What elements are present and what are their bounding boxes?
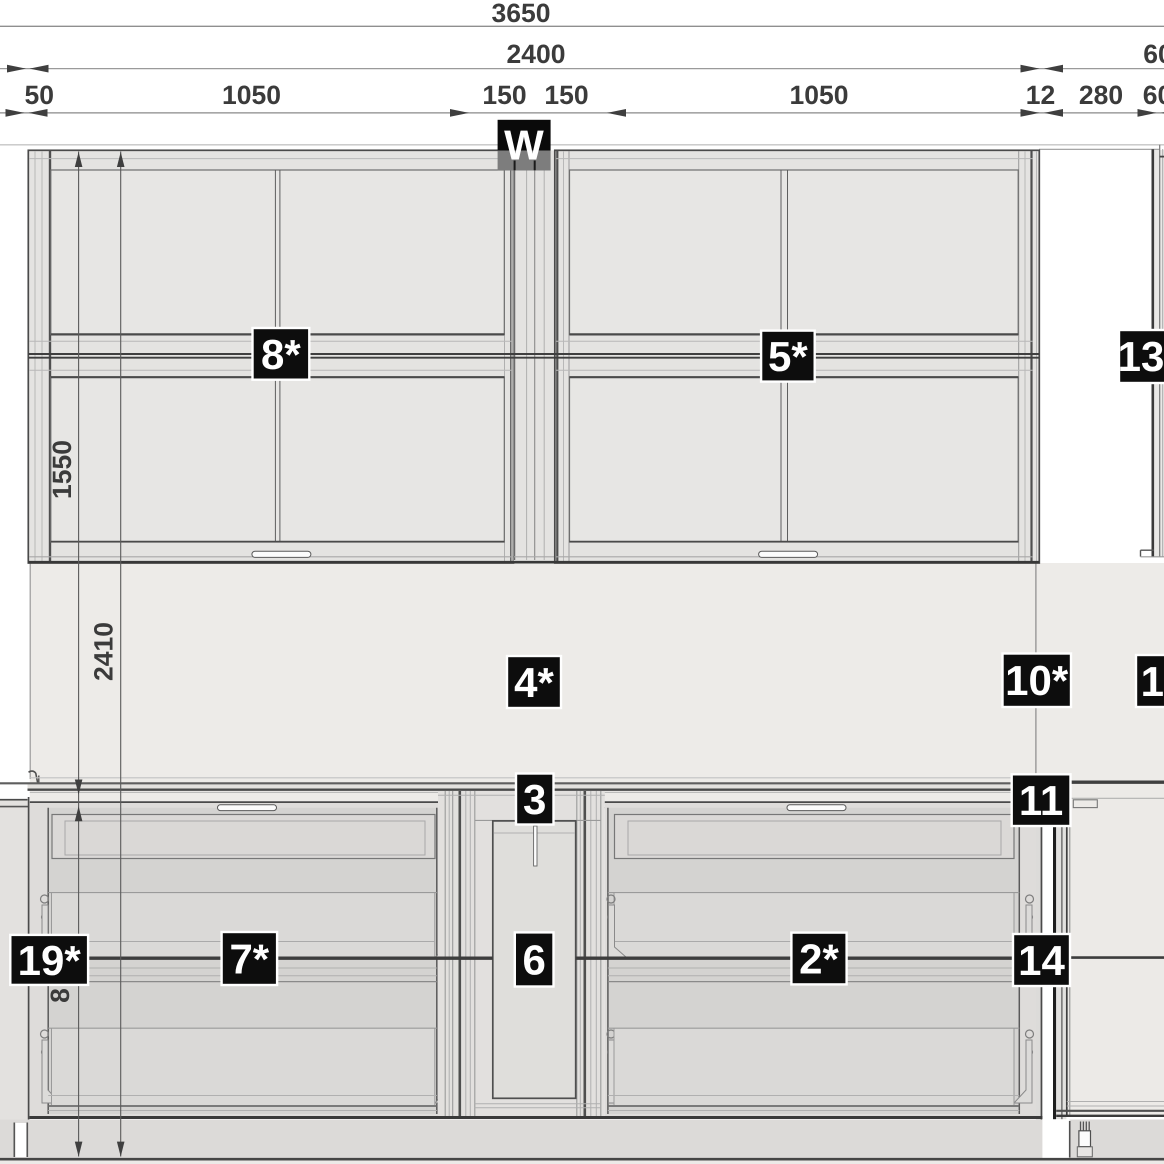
- svg-text:1050: 1050: [222, 80, 281, 110]
- svg-text:150: 150: [544, 80, 588, 110]
- svg-text:7*: 7*: [229, 936, 269, 983]
- svg-text:13: 13: [1118, 333, 1164, 380]
- svg-text:10*: 10*: [1005, 657, 1069, 704]
- svg-text:150: 150: [482, 80, 526, 110]
- svg-text:W: W: [504, 122, 544, 169]
- svg-text:1550: 1550: [47, 440, 77, 499]
- svg-text:50: 50: [25, 80, 54, 110]
- svg-text:2410: 2410: [88, 622, 118, 681]
- svg-text:2*: 2*: [799, 936, 839, 983]
- svg-text:11: 11: [1019, 777, 1063, 824]
- svg-text:12: 12: [1026, 80, 1055, 110]
- svg-text:60: 60: [1143, 80, 1164, 110]
- svg-text:1050: 1050: [790, 80, 849, 110]
- svg-text:3: 3: [523, 776, 546, 823]
- svg-text:8: 8: [45, 988, 75, 1003]
- svg-text:19*: 19*: [18, 937, 82, 984]
- svg-text:60: 60: [1143, 39, 1164, 69]
- svg-text:280: 280: [1079, 80, 1123, 110]
- svg-text:16: 16: [1141, 658, 1164, 705]
- svg-text:8*: 8*: [261, 331, 301, 378]
- svg-text:2400: 2400: [507, 39, 566, 69]
- svg-text:3650: 3650: [492, 0, 551, 28]
- svg-text:4*: 4*: [514, 659, 554, 706]
- svg-text:14: 14: [1018, 937, 1065, 984]
- svg-text:5*: 5*: [768, 333, 808, 380]
- svg-text:6: 6: [523, 937, 546, 984]
